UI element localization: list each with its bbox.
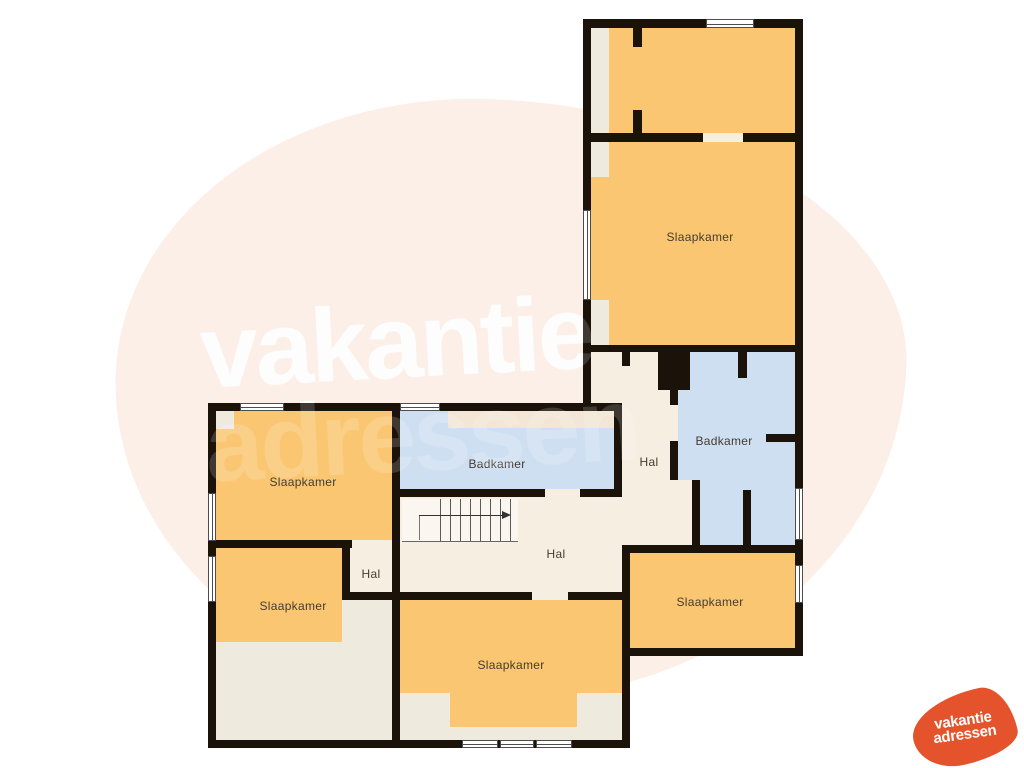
wall — [580, 489, 622, 497]
wall — [622, 545, 795, 553]
window — [795, 565, 803, 603]
wall — [400, 489, 545, 497]
wall — [670, 383, 678, 405]
floor-plan-page: vakantie adressen — [0, 0, 1024, 768]
room-label-hal-center: Hal — [547, 547, 566, 561]
wall-stub — [743, 490, 751, 545]
room-hal-right-floor — [670, 480, 692, 545]
window — [795, 488, 803, 540]
wall — [583, 19, 803, 28]
room-label-badkamer-center: Badkamer — [468, 457, 525, 471]
wall — [670, 441, 678, 480]
wall — [568, 592, 630, 600]
window — [400, 403, 440, 411]
window — [583, 210, 591, 300]
sloped-roof-strip — [591, 300, 609, 345]
door-opening — [532, 592, 568, 600]
wall — [622, 545, 630, 748]
wall — [342, 592, 532, 600]
room-label-slaapkamer-ne: Slaapkamer — [666, 230, 733, 244]
wall — [392, 411, 400, 553]
wall — [583, 133, 703, 142]
room-label-badkamer-right: Badkamer — [695, 434, 752, 448]
room-top-floor — [591, 28, 795, 133]
stair-treads — [440, 499, 518, 541]
door-opening — [703, 133, 743, 142]
window — [462, 740, 498, 748]
hall-column-floor — [591, 352, 622, 403]
sloped-roof-area — [216, 642, 342, 740]
window — [208, 493, 216, 541]
vakantieadressen-logo: vakantie adressen — [912, 692, 1016, 764]
wall — [208, 540, 352, 548]
room-label-slaapkamer-s: Slaapkamer — [477, 658, 544, 672]
room-slaapkamer-sw-floor — [216, 548, 342, 642]
stair-direction-arrow — [419, 515, 504, 516]
wall — [583, 345, 803, 352]
wall — [743, 133, 803, 142]
stair-arrow-head — [502, 511, 511, 519]
sloped-roof-strip — [591, 28, 609, 133]
window — [536, 740, 572, 748]
room-slaapkamer-s-floor — [400, 600, 622, 693]
sloped-roof-area — [342, 600, 392, 740]
room-label-slaapkamer-se: Slaapkamer — [676, 595, 743, 609]
room-label-slaapkamer-nw: Slaapkamer — [269, 475, 336, 489]
sloped-roof-strip — [591, 142, 609, 177]
window — [208, 556, 216, 602]
wall-stub — [738, 352, 747, 378]
wall-stub — [633, 28, 642, 47]
logo-text: vakantie adressen — [907, 685, 1020, 768]
floor-plan: Slaapkamer Badkamer Hal Slaapkamer Slaap… — [0, 0, 1024, 768]
window — [706, 19, 754, 28]
door-opening — [352, 540, 392, 548]
room-label-hal-right: Hal — [640, 455, 659, 469]
wall — [392, 600, 400, 740]
window — [240, 403, 284, 411]
wall — [622, 648, 803, 656]
wall — [692, 480, 700, 545]
wall-stub — [622, 352, 630, 366]
sloped-roof-notch — [216, 411, 234, 429]
room-label-slaapkamer-sw: Slaapkamer — [259, 599, 326, 613]
window — [500, 740, 534, 748]
stair-run-line — [419, 515, 420, 540]
room-slaapkamer-s-floor — [450, 693, 577, 727]
sloped-roof-strip — [448, 411, 614, 428]
door-opening — [670, 405, 678, 441]
staircase — [402, 499, 518, 542]
wall — [795, 19, 803, 656]
wall-stub — [633, 110, 642, 133]
wall — [614, 411, 622, 497]
wall-stub — [766, 434, 795, 442]
door-opening — [545, 489, 580, 497]
room-label-hal-small: Hal — [362, 567, 381, 581]
